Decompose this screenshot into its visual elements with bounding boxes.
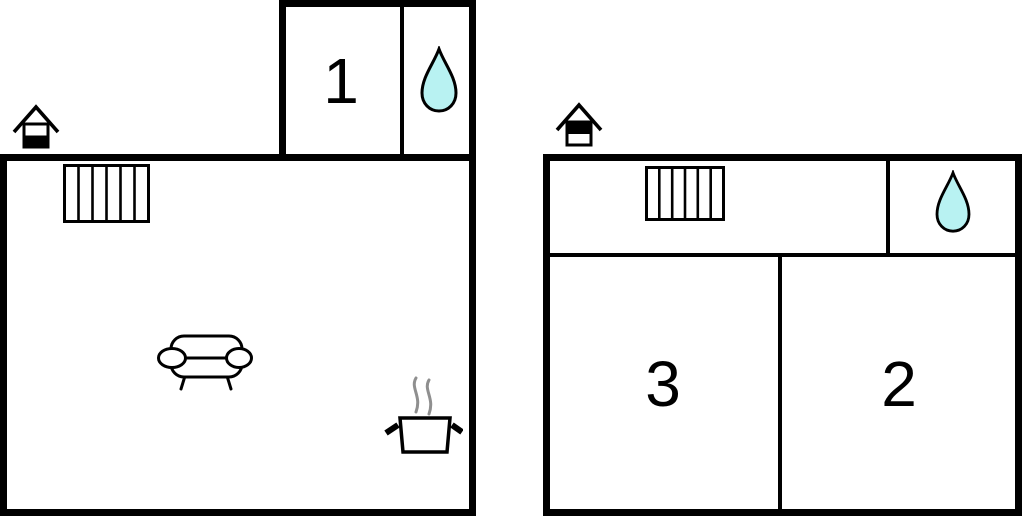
wall xyxy=(543,154,550,516)
wall-bathroom-divider xyxy=(886,161,890,253)
steam-wisp xyxy=(414,378,417,412)
house-lower-half-filled-icon xyxy=(11,103,61,150)
wall xyxy=(543,154,1022,161)
room-label-1: 1 xyxy=(323,49,359,113)
pot-handle xyxy=(386,425,398,433)
sofa-icon xyxy=(155,332,255,392)
water-drop-icon xyxy=(419,46,459,114)
wall-hallway-divider xyxy=(550,253,1015,257)
wall xyxy=(0,154,476,161)
steam-wisp xyxy=(427,380,430,414)
wall xyxy=(543,509,1022,516)
house-upper-half-filled-icon xyxy=(554,101,604,148)
room-label-2: 2 xyxy=(881,352,917,416)
wall xyxy=(469,0,476,516)
house-filled-half xyxy=(23,136,49,149)
wall xyxy=(279,0,286,161)
floor-plan-canvas: 1 xyxy=(0,0,1024,517)
wall-room1-bathroom-divider xyxy=(400,7,404,154)
water-drop-shape xyxy=(422,49,456,111)
stairs-icon xyxy=(645,166,725,221)
wall xyxy=(0,154,7,516)
house-filled-half xyxy=(566,121,592,134)
room-label-3: 3 xyxy=(645,352,681,416)
stairs-icon xyxy=(63,164,150,223)
wall xyxy=(0,509,476,516)
cooking-pot-icon xyxy=(377,374,463,458)
wall-room3-room2-divider xyxy=(778,257,782,509)
pot-handle xyxy=(452,425,462,432)
water-drop-shape xyxy=(937,173,969,231)
sofa-armrest xyxy=(227,349,252,368)
sofa-armrest xyxy=(159,349,186,368)
pot-body xyxy=(400,418,450,452)
water-drop-icon xyxy=(934,170,972,234)
wall xyxy=(1015,154,1022,516)
wall xyxy=(279,0,476,7)
